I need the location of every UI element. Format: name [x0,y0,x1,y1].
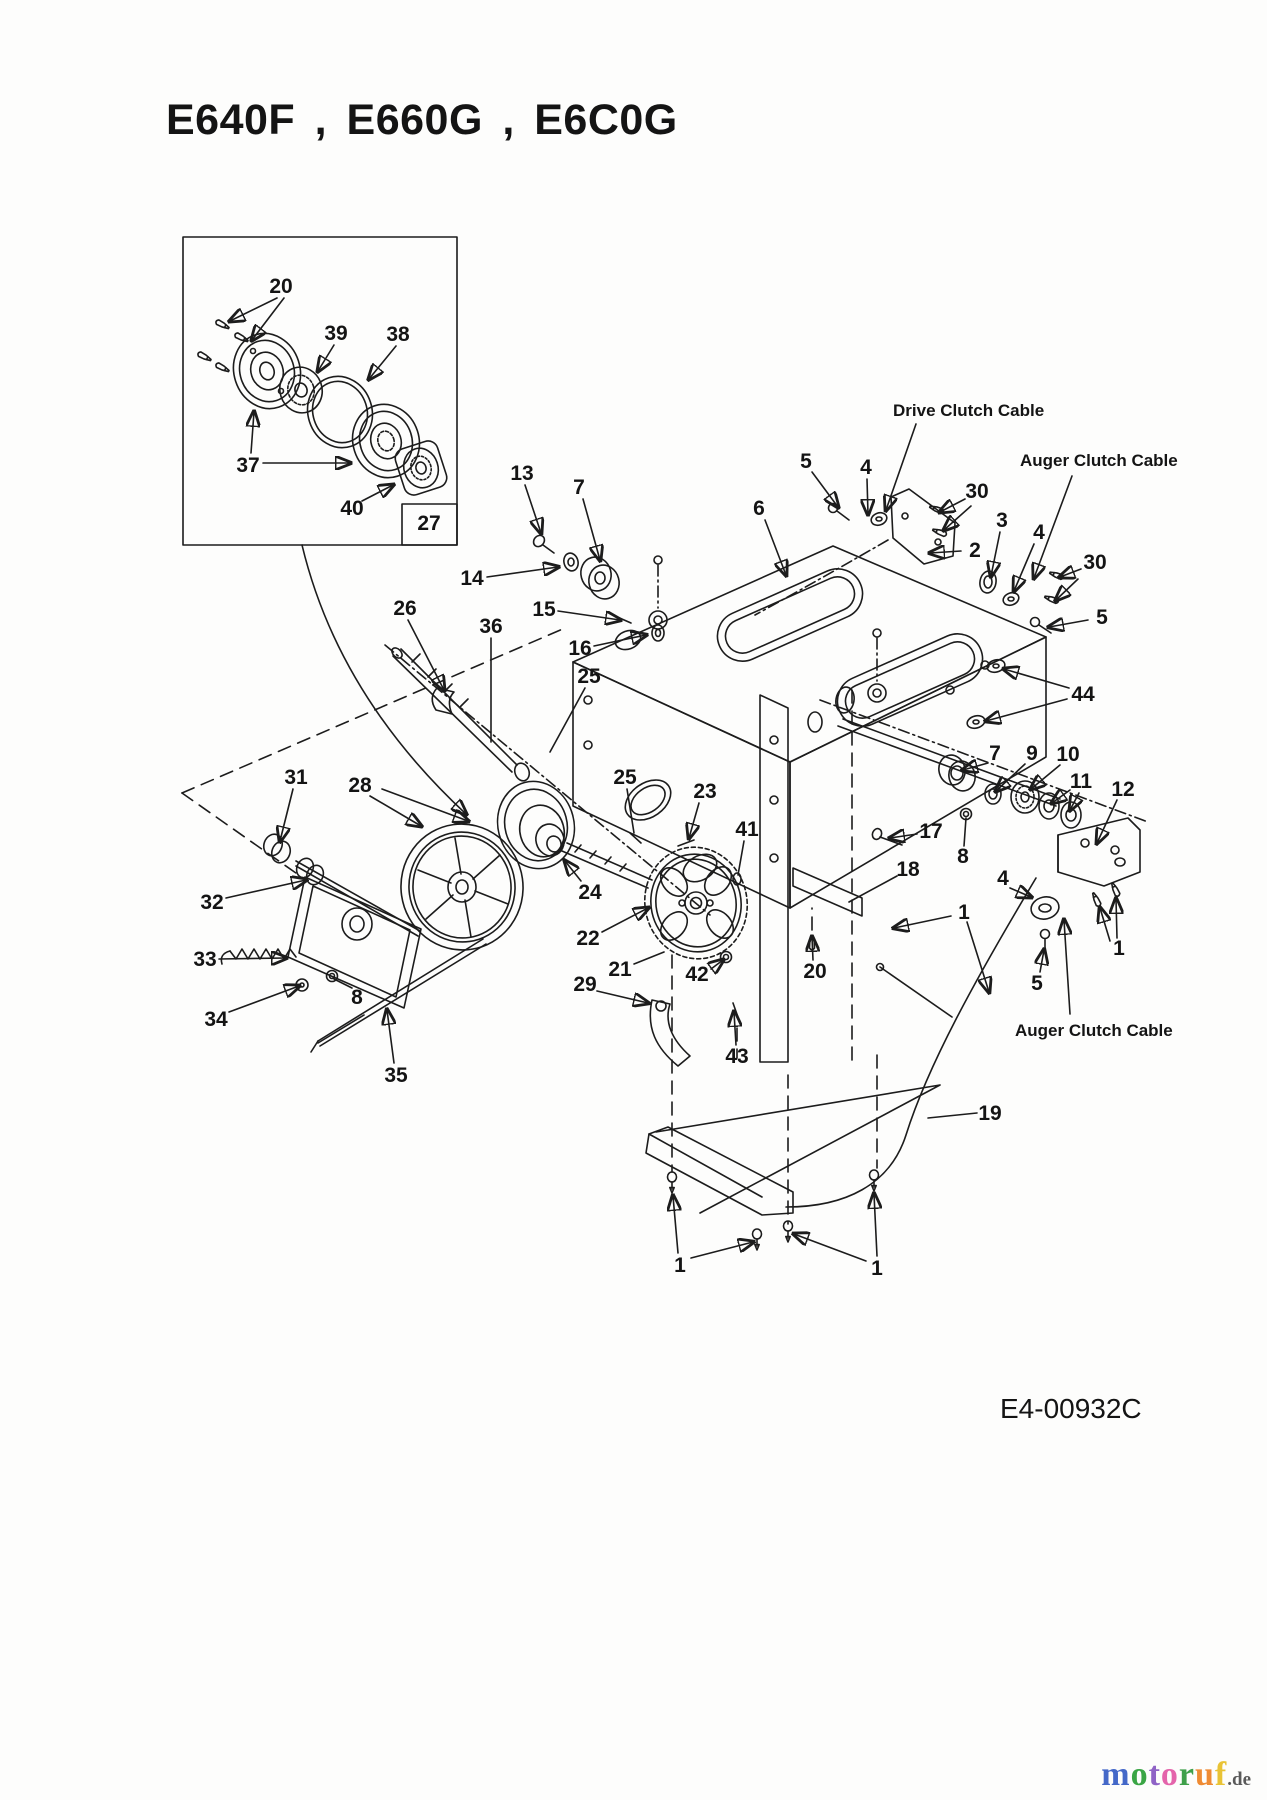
svg-text:31: 31 [284,766,308,789]
panel-guide-lines [656,1085,940,1213]
motoruf-watermark: motoruf.de [1101,1756,1251,1794]
screw-icon [1091,892,1102,907]
callout-4: 4 [1014,521,1045,591]
svg-text:9: 9 [1026,742,1038,765]
callout-20: 20 [230,275,293,340]
hex-shaft [562,843,652,888]
callout-30: 30 [940,480,989,530]
svg-text:10: 10 [1056,743,1079,766]
svg-text:12: 12 [1111,778,1134,801]
callout-34: 34 [204,986,299,1031]
callout-5: 5 [800,450,838,507]
svg-text:34: 34 [204,1008,228,1031]
spacer [936,752,979,794]
push-nut [966,714,986,730]
bolt [829,504,850,521]
callout-42: 42 [685,960,723,986]
exploded-parts-drawing: 2039383740271371415162636256543032430544… [0,0,1267,1800]
svg-text:11: 11 [1070,770,1093,793]
callout-40: 40 [340,485,393,520]
svg-text:30: 30 [1083,551,1106,574]
svg-text:5: 5 [1031,972,1043,995]
svg-text:8: 8 [957,845,969,868]
svg-text:23: 23 [693,780,716,803]
hub-plate [343,396,429,487]
screw-icon [1049,570,1064,580]
svg-text:24: 24 [578,881,602,904]
svg-text:36: 36 [479,615,502,638]
svg-text:38: 38 [386,323,410,346]
callout-4: 4 [997,867,1031,897]
grommet [978,570,998,594]
shift-rod [318,939,486,1046]
left-frame-assembly [221,832,486,1052]
motoruf-logo-text: motoruf [1101,1756,1227,1793]
callout-24: 24 [565,861,602,904]
callout-21: 21 [608,952,664,981]
drive-pulley [488,773,584,878]
bolt [1041,930,1050,955]
idler-arm [650,1000,690,1066]
cable-washer [869,511,888,528]
svg-text:15: 15 [532,598,556,621]
callout-27: 27 [417,512,440,535]
svg-text:3: 3 [996,509,1008,532]
callout-17: 17 [890,820,943,843]
hex-nut [296,979,308,991]
callout-3: 3 [991,509,1008,576]
svg-text:25: 25 [613,766,637,789]
svg-text:1: 1 [674,1254,686,1277]
svg-text:27: 27 [417,512,440,535]
svg-text:32: 32 [200,891,223,914]
callout-37: 37 [236,412,350,477]
callout-41: 41 [735,818,759,875]
callout-8: 8 [957,818,969,868]
svg-text:30: 30 [965,480,988,503]
auger-clutch-cable-path [786,878,1036,1207]
callout-30: 30 [1056,551,1107,600]
callout-2: 2 [930,539,981,562]
screw-icon [234,332,249,343]
svg-text:37: 37 [236,454,259,477]
callout-5: 5 [1049,606,1108,629]
svg-text:42: 42 [685,963,708,986]
screw-icon [870,1170,879,1191]
callout-15: 15 [532,598,620,621]
svg-text:18: 18 [896,858,920,881]
screw-icon [753,1229,762,1250]
svg-text:29: 29 [573,973,596,996]
svg-text:13: 13 [510,462,533,485]
inset-leader-curve [302,545,466,814]
svg-text:7: 7 [573,476,585,499]
callout-23: 23 [689,780,717,838]
callout-36: 36 [479,615,502,742]
svg-text:Auger Clutch Cable: Auger Clutch Cable [1020,451,1178,470]
svg-text:40: 40 [340,497,363,520]
bolt [1031,618,1052,634]
callout-19: 19 [928,1102,1002,1125]
washer [1061,802,1081,828]
svg-text:5: 5 [1096,606,1108,629]
callout-38: 38 [369,323,410,379]
screw-icon [668,1172,677,1193]
callout-6: 6 [753,497,786,575]
callout-7: 7 [573,476,600,560]
lower-panel [646,1085,940,1250]
screw-icon [197,351,212,362]
svg-text:28: 28 [348,774,372,797]
callout-1: 1 [894,901,989,992]
svg-text:Auger Clutch Cable: Auger Clutch Cable [1015,1021,1173,1040]
cable-pulley [1029,894,1061,921]
callout-11: 11 [1052,770,1092,810]
callout-22: 22 [576,908,648,950]
callout-5: 5 [1031,950,1044,995]
housing-slot [709,561,870,669]
washer [985,784,1001,804]
svg-text:16: 16 [568,637,591,660]
svg-text:1: 1 [958,901,970,924]
idler-pulley [577,554,623,603]
callout-1: 1 [794,1194,883,1280]
svg-text:33: 33 [193,948,216,971]
svg-text:26: 26 [393,597,416,620]
svg-text:Drive Clutch Cable: Drive Clutch Cable [893,401,1044,420]
washer [652,625,664,641]
label-e4-00932c: E4-00932C [1000,1393,1142,1424]
housing-slot [829,626,990,734]
svg-text:44: 44 [1071,683,1095,706]
svg-text:17: 17 [919,820,942,843]
svg-text:4: 4 [860,456,872,479]
svg-text:14: 14 [460,567,484,590]
callout-1: 1 [1100,899,1125,960]
svg-text:43: 43 [725,1045,748,1068]
top-hardware [432,489,1064,730]
svg-text:39: 39 [324,322,347,345]
svg-text:20: 20 [269,275,292,298]
flat-washer [562,551,580,572]
screw-icon [1110,882,1121,897]
callout-28: 28 [348,774,468,826]
svg-text:4: 4 [997,867,1009,890]
svg-text:7: 7 [989,742,1001,765]
svg-text:5: 5 [800,450,812,473]
callout-18: 18 [849,858,920,902]
svg-text:1: 1 [871,1257,883,1280]
callout-35: 35 [384,1010,408,1087]
callout-13: 13 [510,462,541,533]
callout-14: 14 [460,567,558,590]
svg-text:20: 20 [803,960,826,983]
svg-text:6: 6 [753,497,765,520]
svg-text:1: 1 [1113,937,1125,960]
svg-text:35: 35 [384,1064,408,1087]
shaft-key [678,840,694,846]
motoruf-domain-suffix: .de [1227,1769,1251,1790]
cable-washer [1001,591,1020,608]
svg-text:19: 19 [978,1102,1001,1125]
cables [786,878,1036,1207]
parts-diagram-page: { "page": { "title": "E640F , E660G , E6… [0,0,1267,1800]
wheel [393,816,531,958]
svg-text:8: 8 [351,986,363,1009]
svg-text:2: 2 [969,539,981,562]
bolt [531,533,554,553]
svg-text:4: 4 [1033,521,1045,544]
callout-39: 39 [318,322,348,371]
cable-segment [880,967,952,1017]
callout-25: 25 [550,665,601,752]
svg-text:E4-00932C: E4-00932C [1000,1393,1142,1424]
callout-26: 26 [393,597,444,690]
wheel-spokes [418,838,508,937]
screw-icon [215,362,230,373]
svg-text:41: 41 [735,818,759,841]
callout-31: 31 [280,766,308,841]
callout-1: 1 [673,1196,753,1277]
callout-44: 44 [986,669,1095,721]
screw-icon [215,319,230,330]
callout-4: 4 [860,456,872,514]
callout-32: 32 [200,880,306,914]
svg-text:21: 21 [608,958,632,981]
svg-text:25: 25 [577,665,601,688]
svg-text:22: 22 [576,927,599,950]
spline-shaft [393,649,517,772]
